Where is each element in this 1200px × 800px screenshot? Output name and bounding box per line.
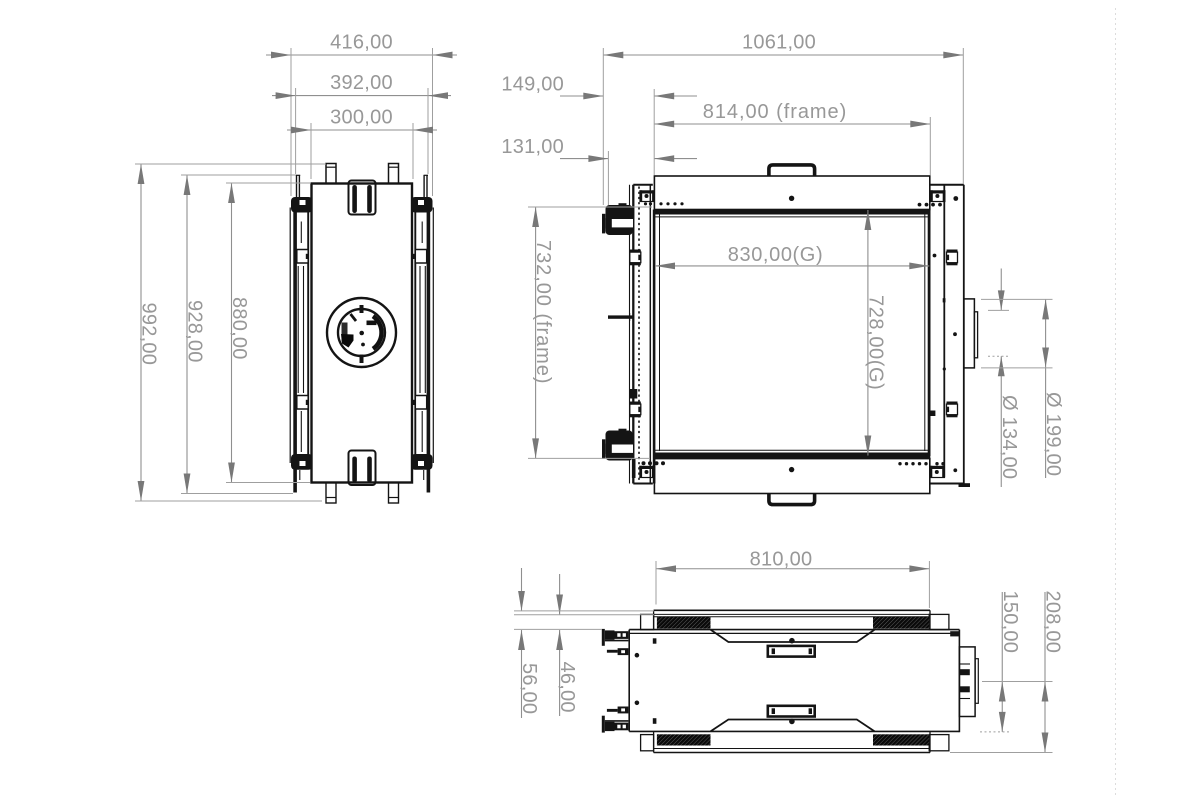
svg-text:830,00(G): 830,00(G) <box>728 244 823 266</box>
svg-text:150,00: 150,00 <box>999 591 1021 654</box>
svg-text:416,00: 416,00 <box>330 32 393 54</box>
svg-text:131,00: 131,00 <box>501 136 564 158</box>
svg-text:1061,00: 1061,00 <box>742 32 816 54</box>
svg-text:392,00: 392,00 <box>330 72 393 94</box>
svg-text:Ø 199,00: Ø 199,00 <box>1042 392 1064 476</box>
svg-text:208,00: 208,00 <box>1042 591 1064 654</box>
svg-text:46,00: 46,00 <box>556 662 578 713</box>
svg-text:732,00 (frame): 732,00 (frame) <box>532 240 554 384</box>
svg-text:149,00: 149,00 <box>501 74 564 96</box>
svg-text:880,00: 880,00 <box>228 297 250 360</box>
svg-text:728,00(G): 728,00(G) <box>864 295 886 390</box>
svg-text:928,00: 928,00 <box>184 300 206 363</box>
svg-text:56,00: 56,00 <box>518 663 540 714</box>
svg-text:Ø 134,00: Ø 134,00 <box>998 395 1020 479</box>
svg-text:810,00: 810,00 <box>750 549 813 571</box>
svg-text:300,00: 300,00 <box>330 107 393 129</box>
svg-text:814,00 (frame): 814,00 (frame) <box>703 101 847 123</box>
svg-text:992,00: 992,00 <box>138 303 160 366</box>
